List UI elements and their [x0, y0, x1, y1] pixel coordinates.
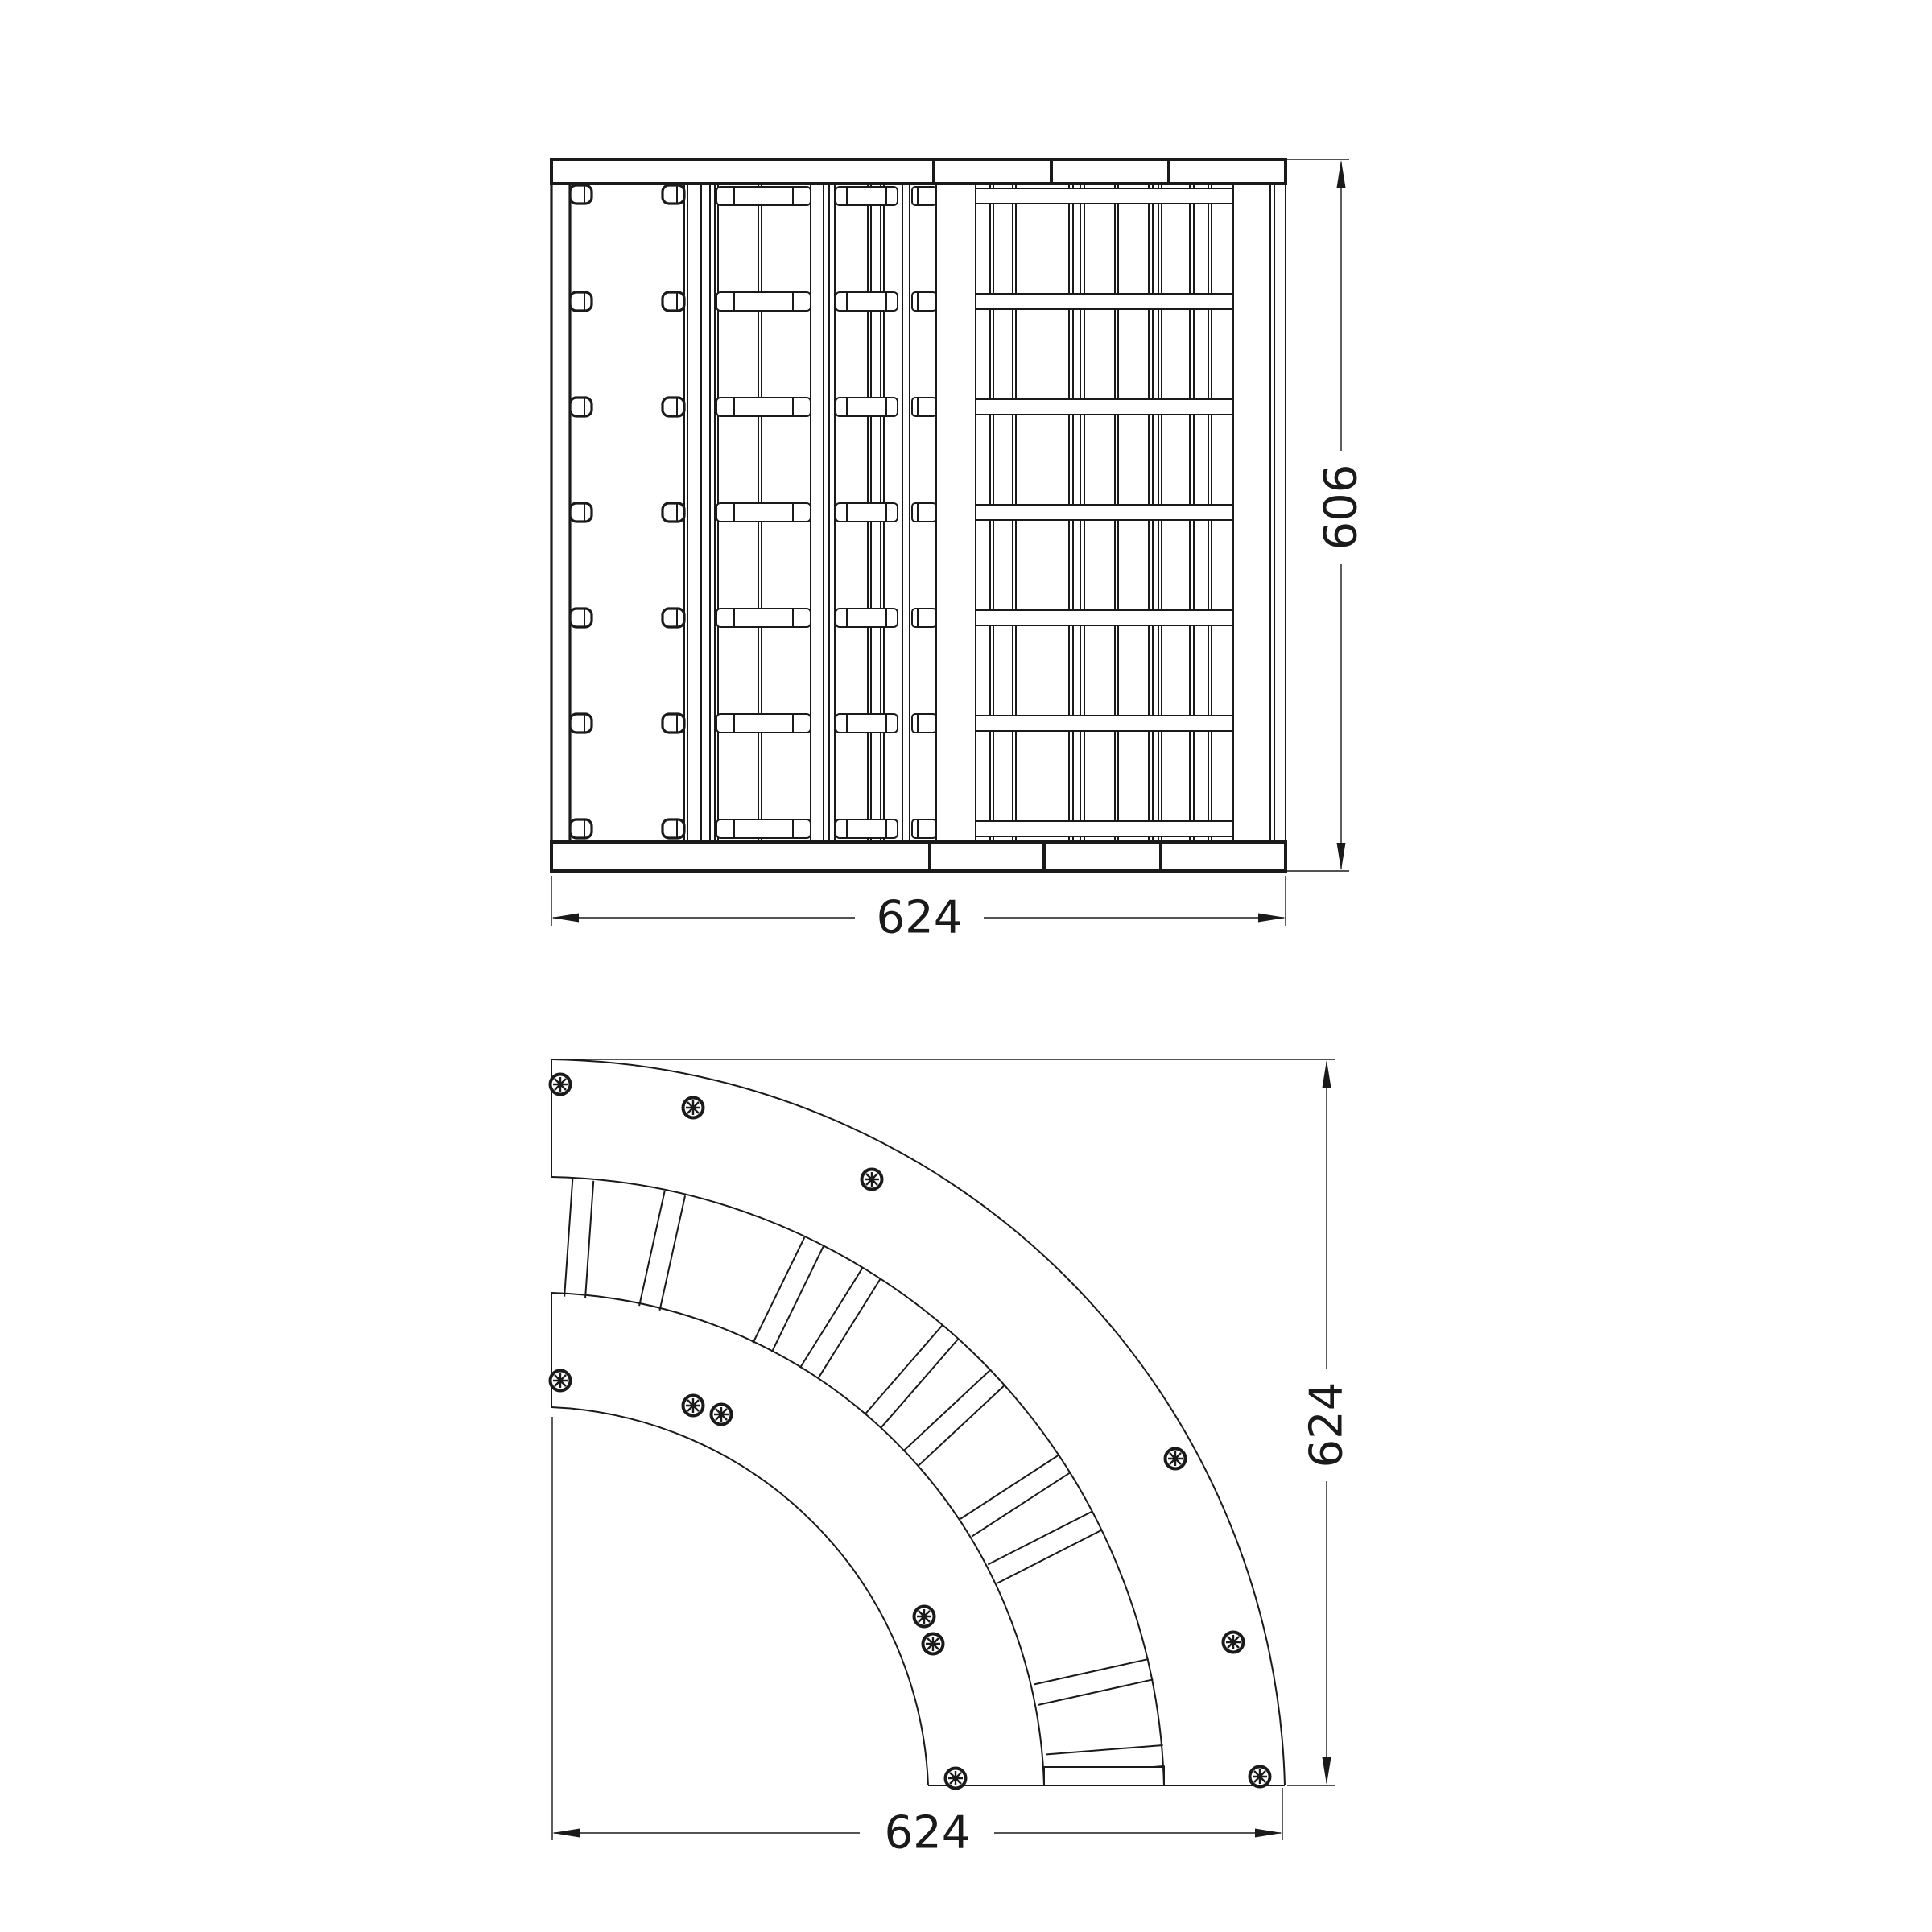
plan-rung-end-block [1044, 1767, 1164, 1785]
plan-height-label: 624 [1301, 1382, 1353, 1468]
elevation-top-bar [551, 159, 1286, 184]
plan-width-dimension: 624 [552, 1417, 1282, 1860]
plan-outer-wall-inner-arc [551, 1177, 1164, 1785]
plan-height-dimension: 624 [563, 1059, 1353, 1785]
elevation-width-label: 624 [877, 892, 963, 944]
plan-arcs [551, 1059, 1285, 1785]
plan-rungs [564, 1179, 1165, 1785]
elevation-bottom-bar [551, 842, 1286, 871]
elevation-clips [570, 185, 684, 838]
elevation-height-dimension: 606 [1287, 159, 1368, 871]
plan-width-label: 624 [885, 1807, 971, 1860]
elevation-view: 606 624 [551, 159, 1368, 944]
plan-inner-wall-inner-arc [551, 1407, 928, 1785]
plan-outer-wall-outer-arc [551, 1059, 1285, 1785]
plan-inner-wall-outer-arc [551, 1293, 1044, 1785]
drawing-canvas: 606 624 [0, 0, 1932, 1932]
elevation-width-dimension: 624 [551, 876, 1286, 944]
plan-view: 624 624 [551, 1059, 1353, 1860]
elevation-height-label: 606 [1315, 464, 1368, 551]
